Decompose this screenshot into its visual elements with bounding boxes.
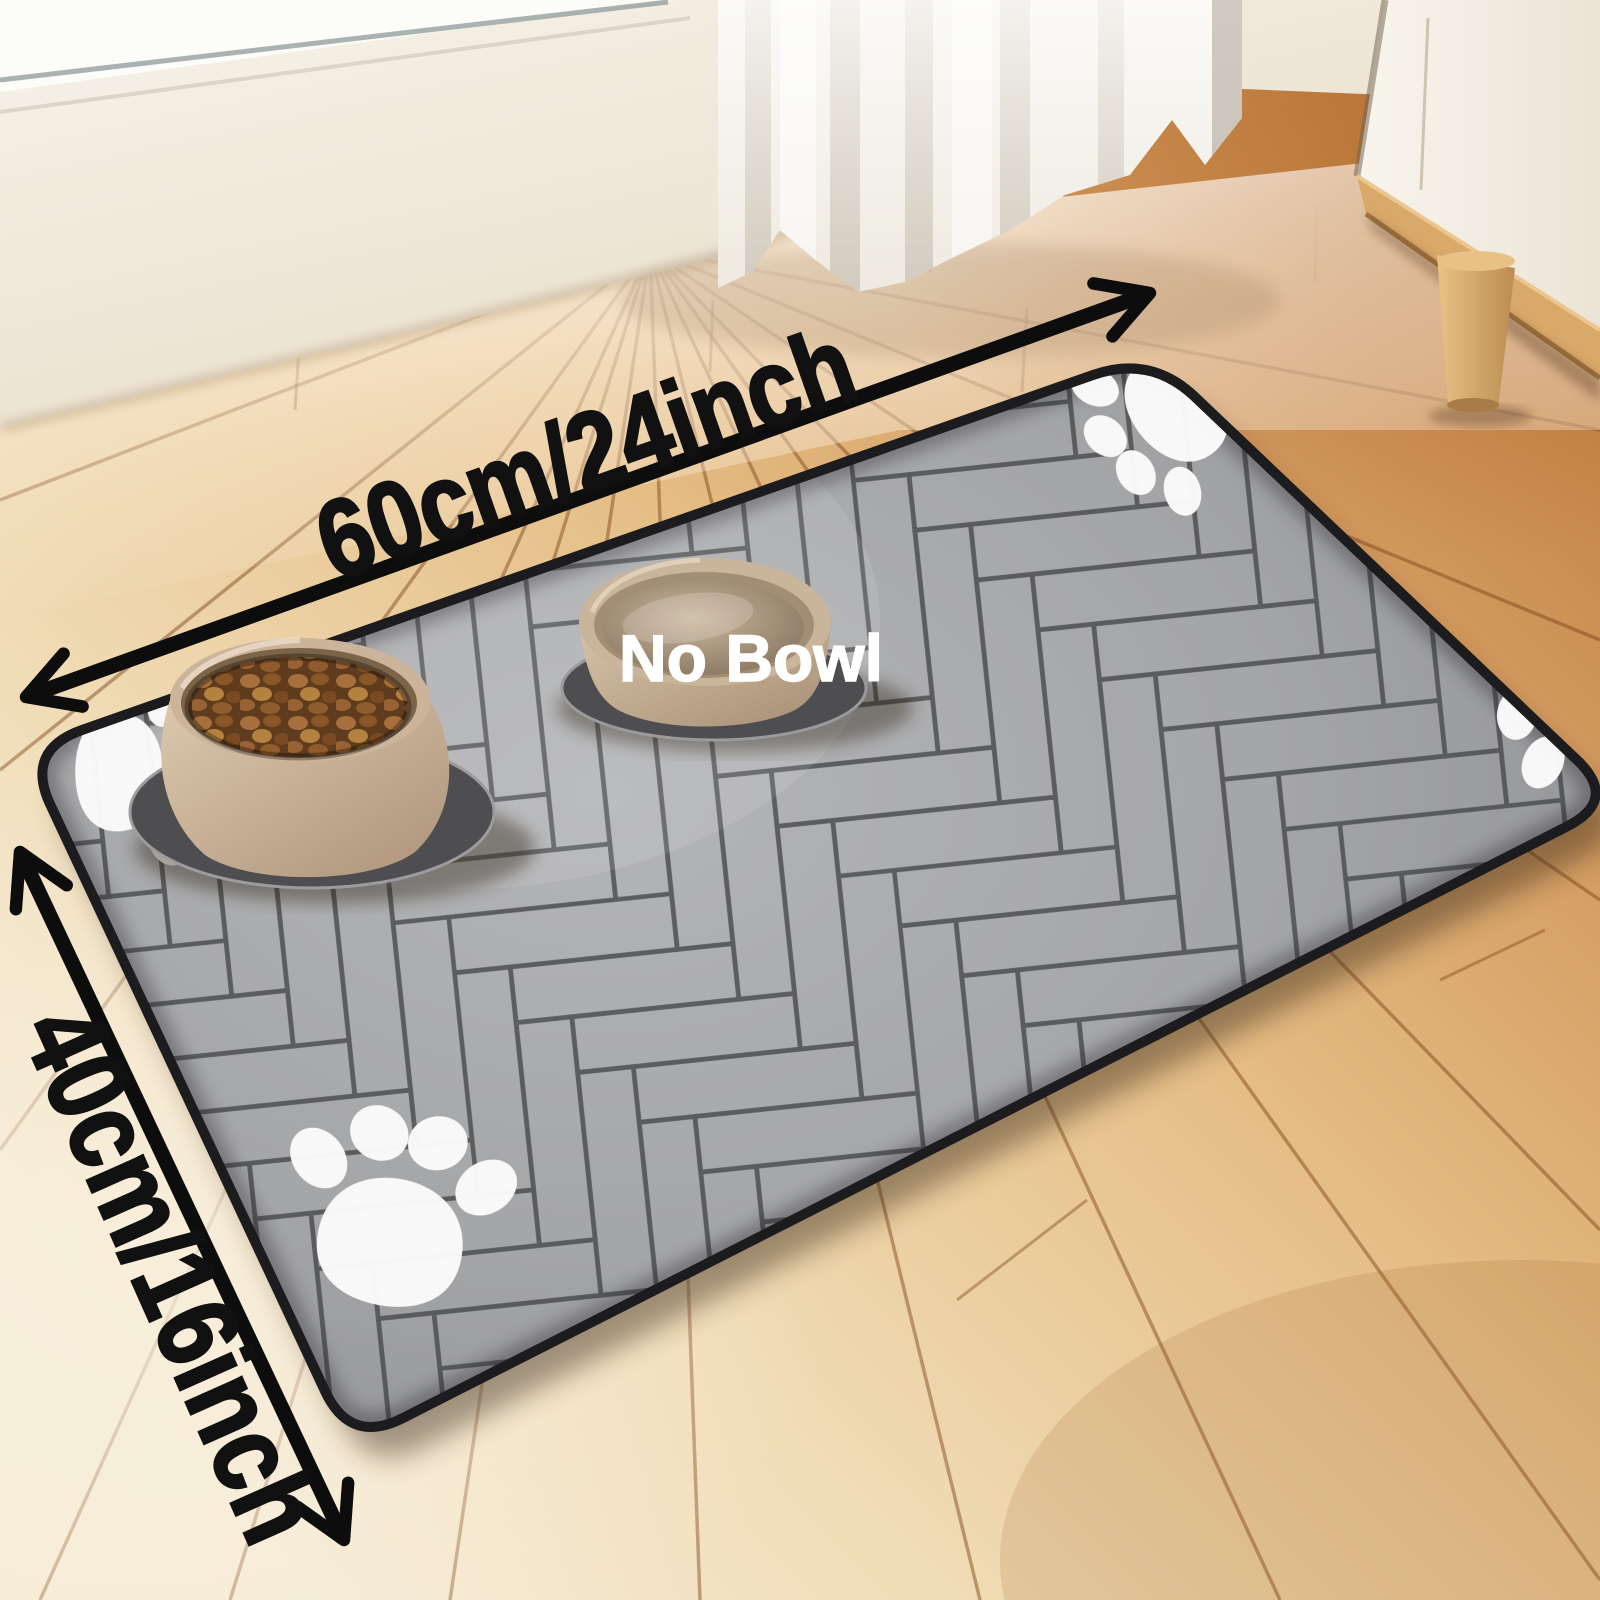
- scene: 60cm/24inch 40cm/16inch No Bowl: [0, 0, 1600, 1600]
- product-photo: 60cm/24inch 40cm/16inch No Bowl: [0, 0, 1600, 1600]
- no-bowl-label: No Bowl: [619, 621, 883, 695]
